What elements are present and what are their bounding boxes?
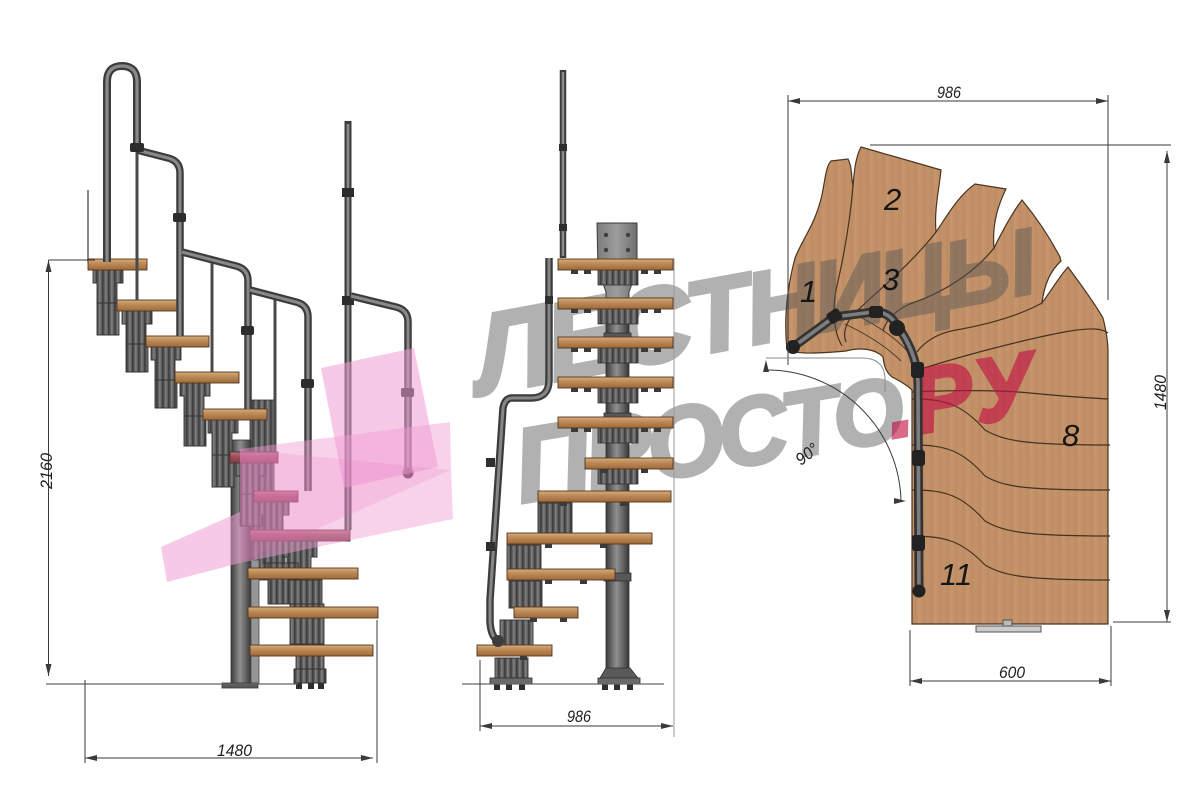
svg-text:11: 11: [940, 557, 972, 592]
svg-text:1480: 1480: [1151, 375, 1170, 410]
svg-text:8: 8: [1062, 418, 1080, 453]
svg-text:2: 2: [883, 182, 901, 217]
svg-text:2160: 2160: [37, 452, 56, 489]
svg-text:1480: 1480: [217, 741, 252, 760]
svg-text:3: 3: [882, 262, 899, 297]
svg-text:986: 986: [567, 707, 591, 726]
svg-text:1: 1: [800, 274, 817, 309]
svg-text:986: 986: [937, 83, 961, 102]
svg-text:600: 600: [999, 663, 1025, 682]
